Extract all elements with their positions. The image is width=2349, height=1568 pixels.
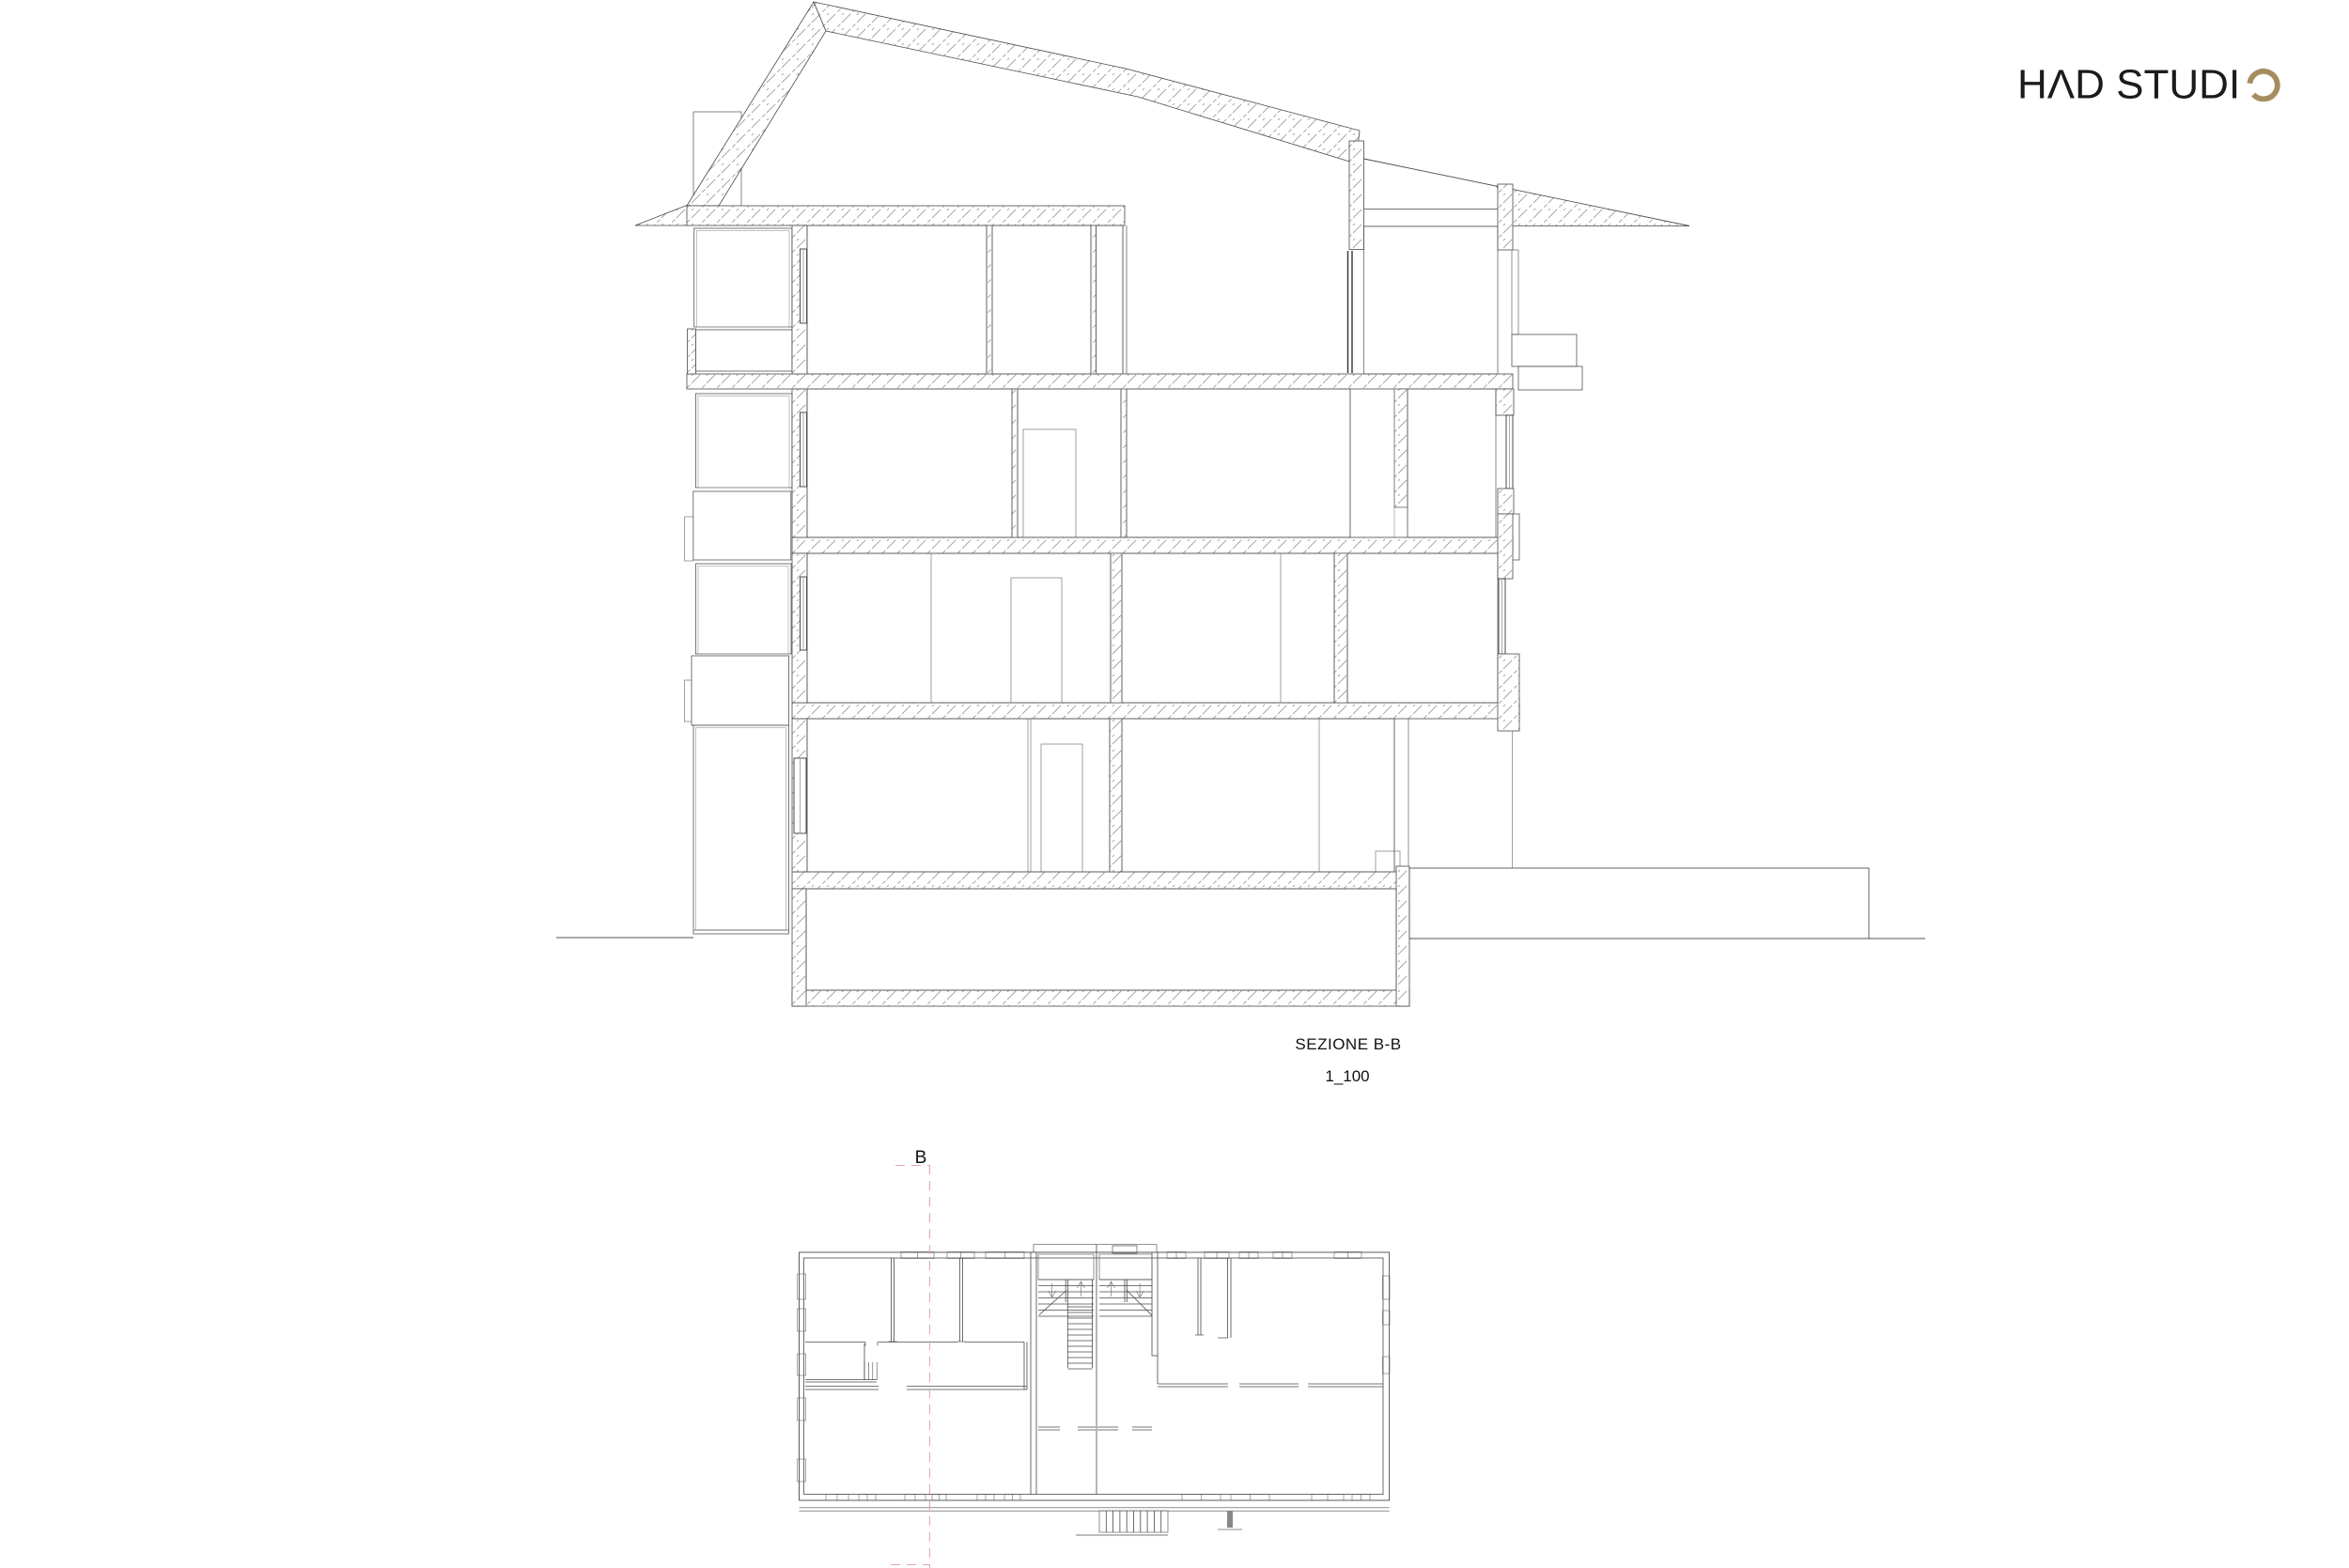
svg-text:SEZIONE B-B: SEZIONE B-B [1295, 1035, 1401, 1053]
svg-text:B: B [915, 1148, 927, 1168]
svg-text:1_100: 1_100 [1325, 1067, 1369, 1085]
svg-text:HΛD STUDI: HΛD STUDI [2017, 62, 2240, 108]
